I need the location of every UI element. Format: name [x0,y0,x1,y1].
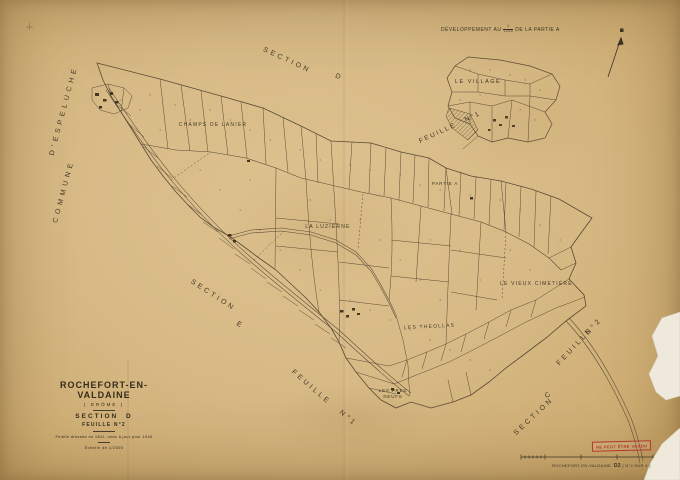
title-commune-name: ROCHEFORT-EN-VALDAINE [38,380,170,400]
title-scale-note: Échelle de 1/2500 [38,445,170,450]
north-arrow-icon [608,29,623,77]
title-block: ROCHEFORT-EN-VALDAINE ( DRÔME ) SECTION … [38,380,170,450]
development-note: DÉVELOPPEMENT AU 1 1250 DE LA PARTIE A [441,25,560,34]
footer-reference-name: ROCHEFORT-EN-VALDAINE. [552,463,612,468]
divider [98,442,110,443]
red-stamp: NE PEUT ÊTRE VENDU [592,440,652,452]
place-label-les-pres: LES PRES [373,388,413,393]
building-marks [95,92,473,394]
development-note-suffix: DE LA PARTIE A [515,27,560,33]
place-label-neufs: NEUFS [373,394,413,399]
development-scale-fraction: 1 1250 [503,25,513,34]
title-section: SECTION D [38,413,170,420]
place-label-vieux-cimetiere: LE VIEUX CIMETIÈRE [500,281,562,287]
title-sheet: FEUILLE N°2 [38,422,170,428]
footer-sheet-code: D2 [614,463,621,469]
inset-map [446,57,560,149]
place-label-la-luzierne: LA LUZIERNE [295,224,361,230]
paper-tears [644,312,680,480]
scale-bar [521,455,653,460]
divider [93,410,115,411]
inset-title-le-village: LE VILLAGE [455,79,501,85]
divider [93,431,115,432]
development-note-prefix: DÉVELOPPEMENT AU [441,27,501,33]
place-label-champs-de-lanier: CHAMPS DE LANIER [163,122,263,128]
footer-sheet-reference: ROCHEFORT-EN-VALDAINE. D2 ( N°2 SUR 4 ) [552,463,651,469]
trim-mark [26,23,33,30]
place-label-partie-a: PARTIE A [425,181,465,186]
title-departement: ( DRÔME ) [38,402,170,407]
footer-sheet-suffix: ( N°2 SUR 4 ) [622,463,650,468]
parcel-number-specks [120,70,561,370]
title-revision-note: Feuille dressée en 1811, mise à jour pou… [38,434,170,439]
